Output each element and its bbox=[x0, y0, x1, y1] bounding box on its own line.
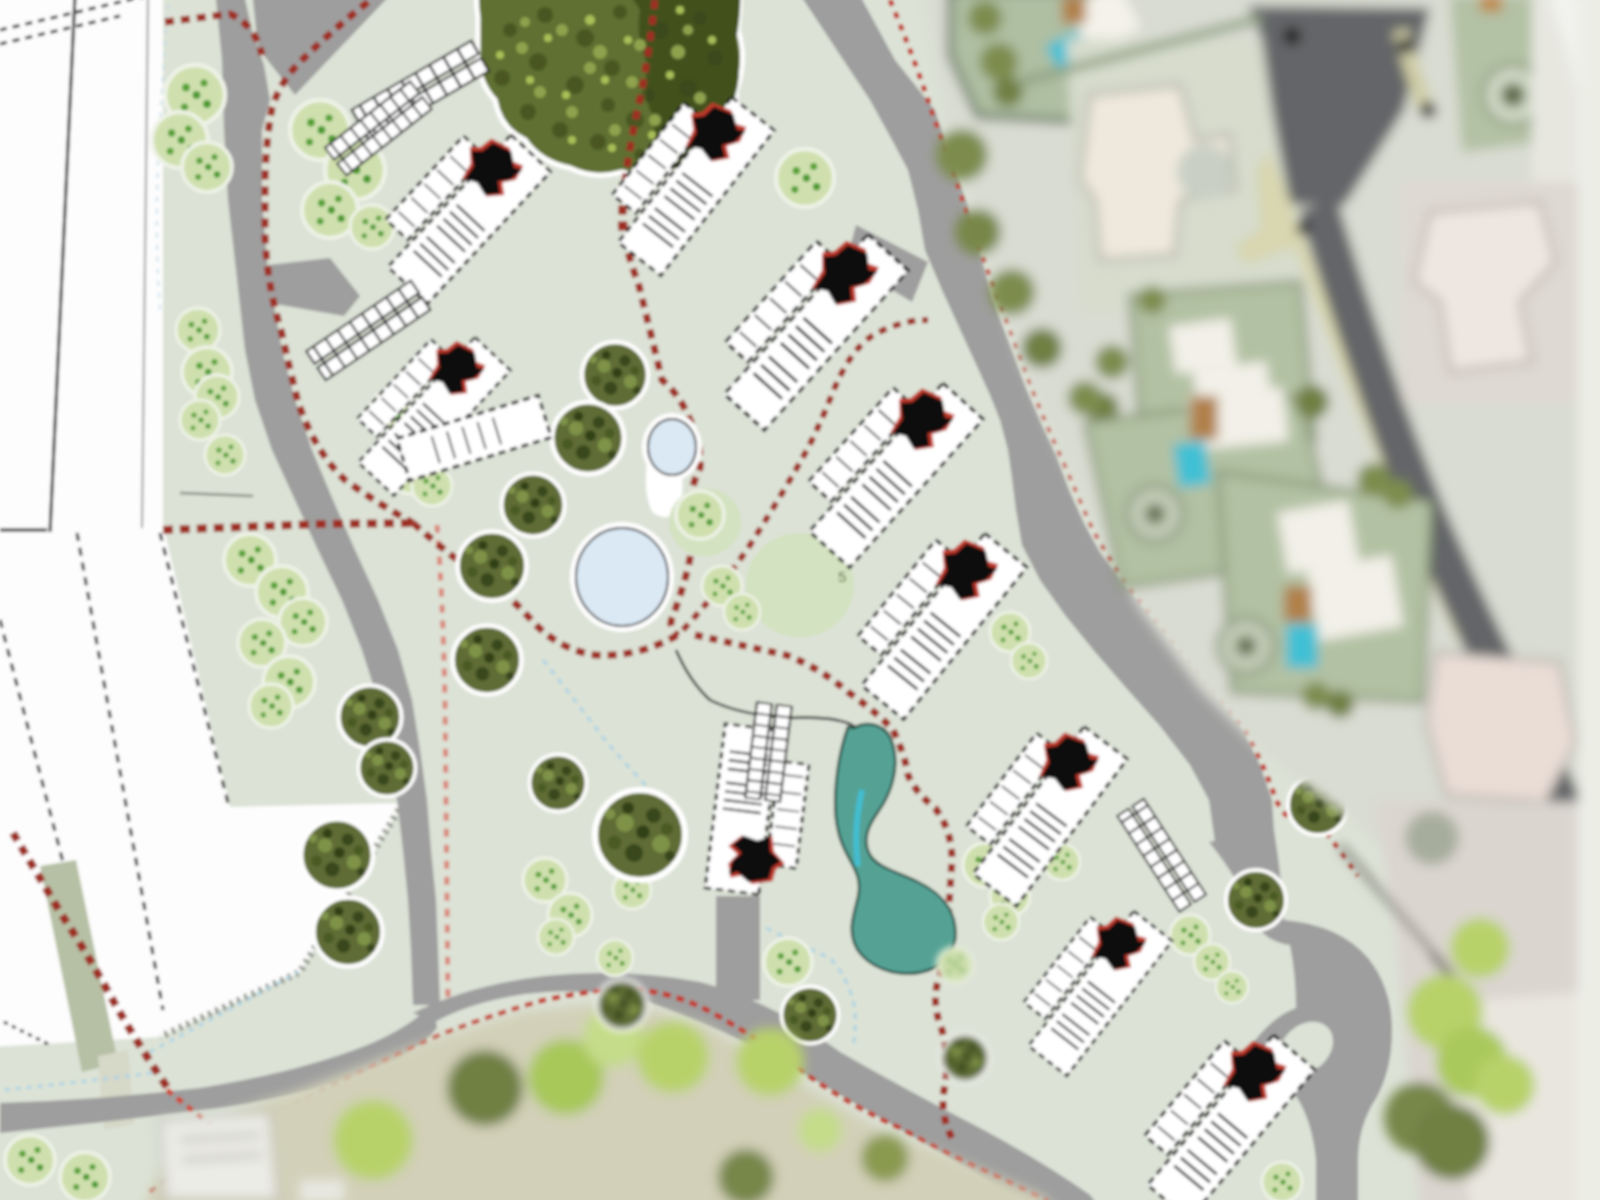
svg-text:5: 5 bbox=[838, 568, 846, 585]
